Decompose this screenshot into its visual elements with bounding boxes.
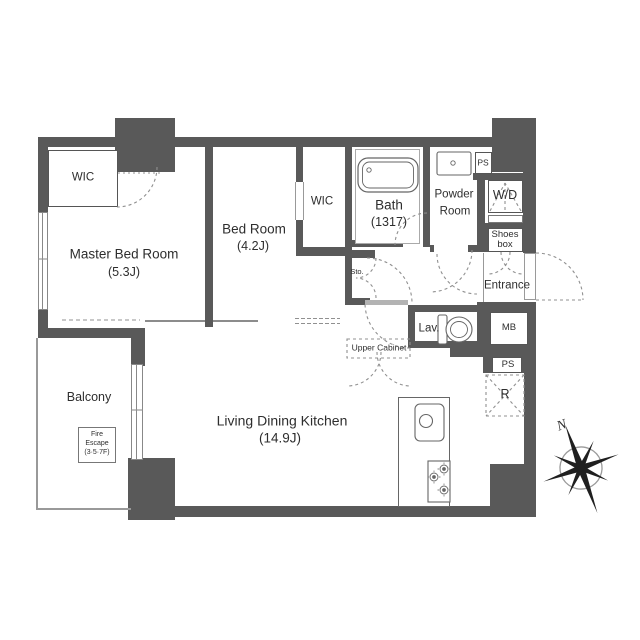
- wall: [490, 464, 536, 508]
- wall: [483, 302, 536, 312]
- label-bath-name: Bath: [375, 199, 403, 214]
- label-bath-size: (1317): [371, 216, 407, 230]
- label-refrigerator: R: [500, 388, 509, 402]
- entrance-step-line: [483, 253, 484, 302]
- window: [131, 364, 143, 460]
- wall: [483, 312, 490, 345]
- label-wic-master: WIC: [72, 172, 94, 185]
- window-centerline: [136, 365, 137, 459]
- sliding-partition: [213, 320, 258, 322]
- kitchen-counter: [398, 397, 450, 507]
- label-entrance: Entrance: [484, 280, 530, 293]
- label-ldk-name: Living Dining Kitchen: [217, 413, 348, 428]
- balcony-rail: [36, 338, 38, 510]
- wall: [523, 172, 536, 213]
- label-wic-bedroom: WIC: [311, 196, 333, 209]
- wall: [492, 118, 536, 172]
- wall: [523, 213, 536, 253]
- wall: [524, 373, 536, 468]
- shelf-box: [488, 215, 523, 223]
- balcony-rail: [36, 508, 131, 510]
- wall: [175, 506, 536, 517]
- wall: [423, 146, 430, 247]
- wall: [483, 357, 492, 373]
- window-centerline: [42, 213, 43, 309]
- powder-sink-icon: [437, 152, 471, 175]
- wall: [131, 338, 145, 366]
- wall: [345, 137, 352, 257]
- floor-plan: WIC Master Bed Room (5.3J) Bed Room (4.2…: [0, 0, 640, 640]
- label-ps-top: PS: [477, 158, 488, 167]
- label-meter-box: MB: [502, 323, 516, 333]
- label-ldk-size: (14.9J): [259, 432, 301, 447]
- label-ps-lower: PS: [502, 360, 515, 370]
- wall: [477, 302, 483, 357]
- wic-folding-door: [295, 182, 304, 220]
- label-master-size: (5.3J): [108, 266, 140, 280]
- label-compass-north: N: [555, 417, 569, 435]
- label-bedroom-name: Bed Room: [222, 223, 286, 238]
- wall: [522, 357, 536, 373]
- sliding-partition: [145, 320, 205, 322]
- window: [38, 212, 48, 310]
- label-master-name: Master Bed Room: [70, 248, 179, 263]
- label-fire-escape-1: Fire: [91, 431, 103, 439]
- label-fire-escape-2: Escape: [85, 440, 108, 448]
- sto-floor: [352, 258, 368, 298]
- label-washer-dryer: W/D: [493, 189, 517, 203]
- wall: [528, 312, 536, 345]
- label-powder-2: Room: [440, 206, 471, 219]
- wall: [408, 341, 483, 348]
- wall: [430, 245, 434, 252]
- wall: [345, 250, 352, 305]
- plan-overlay: [0, 0, 640, 640]
- wall: [115, 118, 175, 172]
- label-shoes-2: box: [497, 240, 512, 250]
- label-upper-cabinet: Upper Cabinet: [352, 343, 407, 352]
- wall: [128, 458, 175, 520]
- label-balcony: Balcony: [67, 391, 111, 405]
- label-powder-1: Powder: [435, 189, 474, 202]
- wall: [296, 247, 352, 256]
- entrance-door-opening: [524, 253, 536, 300]
- wall: [468, 245, 477, 252]
- label-sto: Sto.: [350, 268, 363, 276]
- label-lavatory: Lav.: [419, 323, 440, 336]
- compass-rose-icon: [525, 410, 637, 527]
- label-fire-escape-3: (3·5·7F): [84, 449, 109, 457]
- wall: [38, 137, 48, 212]
- label-bedroom-size: (4.2J): [237, 240, 269, 254]
- wall: [408, 305, 477, 312]
- counter-halfwall: [365, 300, 408, 305]
- wall: [38, 137, 118, 147]
- wall: [38, 328, 145, 338]
- wall: [175, 137, 492, 147]
- wall: [205, 137, 213, 327]
